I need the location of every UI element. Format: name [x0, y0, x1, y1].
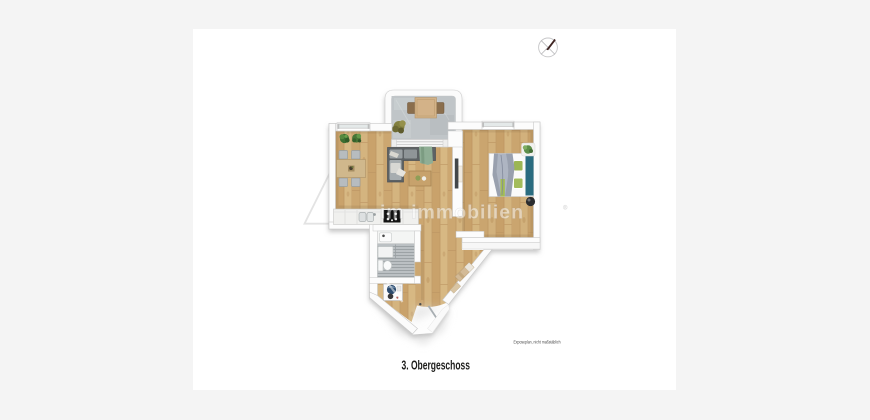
svg-text:im immobilien: im immobilien	[380, 202, 524, 224]
svg-text:®: ®	[563, 205, 568, 212]
svg-text:Exposeplan, nicht maßstäblich: Exposeplan, nicht maßstäblich	[514, 340, 561, 345]
svg-text:3. Obergeschoss: 3. Obergeschoss	[402, 358, 471, 373]
